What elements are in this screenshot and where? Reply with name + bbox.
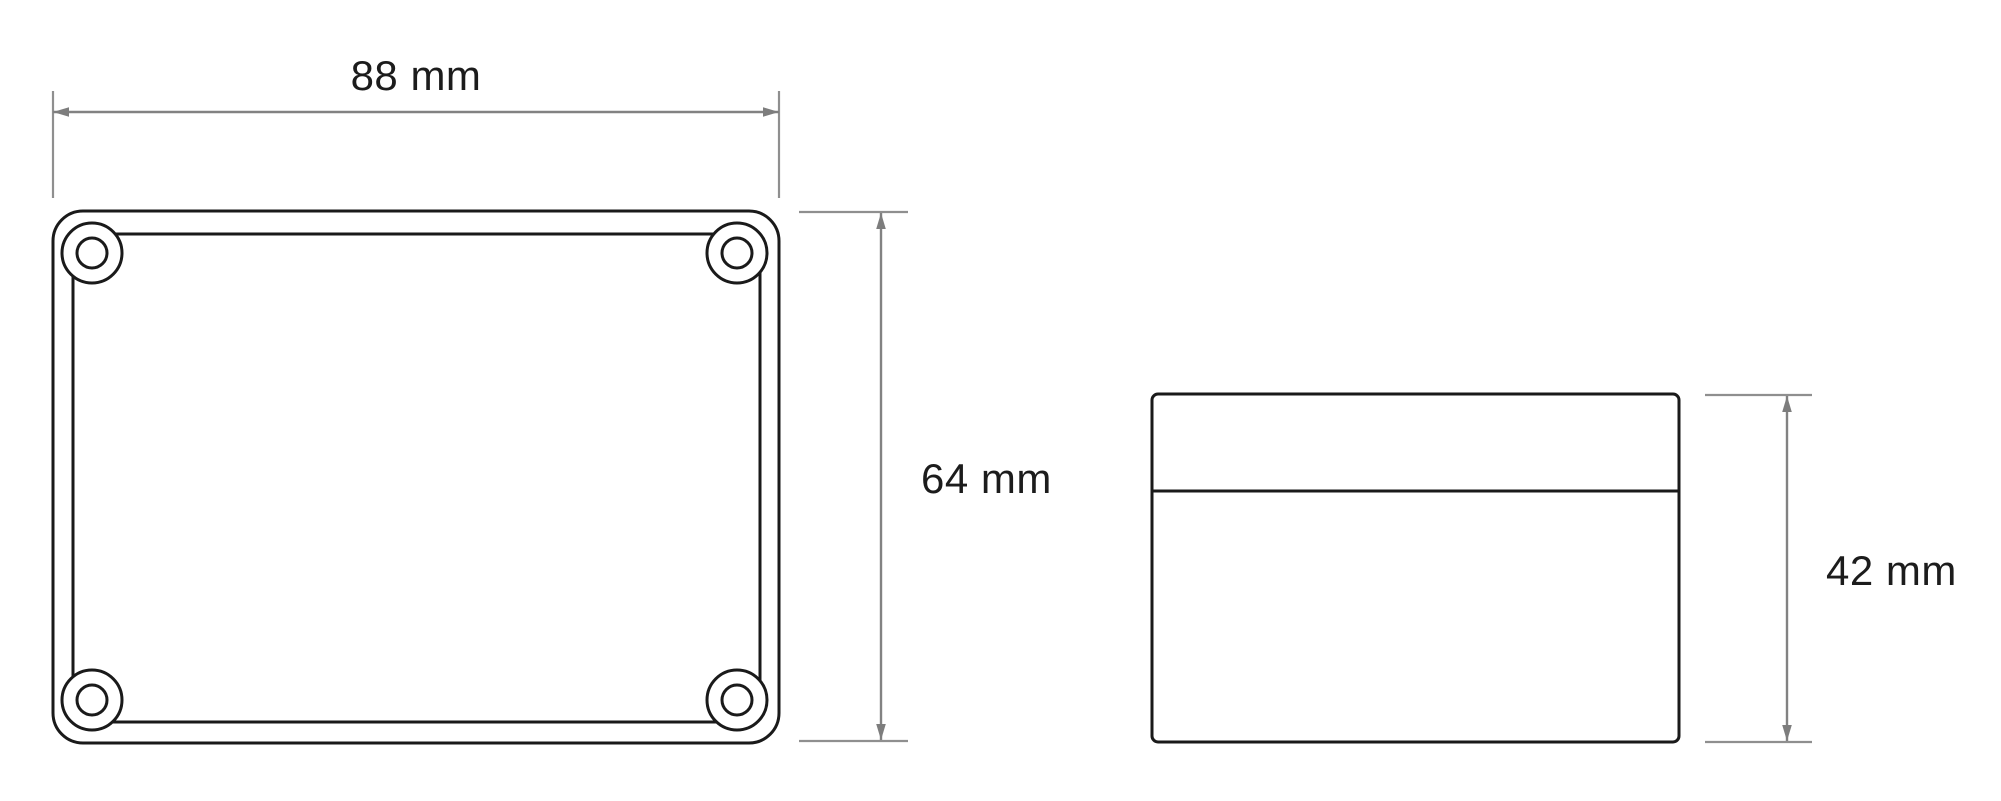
top-view: [53, 211, 779, 743]
dimension-label-width: 88 mm: [351, 52, 482, 99]
screw-boss-bottom-left: [62, 670, 122, 730]
technical-drawing: 88 mm 64 mm 42 mm: [0, 0, 2001, 801]
screw-boss-top-right: [707, 223, 767, 283]
screw-hole: [722, 238, 752, 268]
dimension-label-height: 64 mm: [921, 455, 1052, 502]
screw-boss-bottom-right: [707, 670, 767, 730]
screw-hole: [77, 238, 107, 268]
side-view: [1152, 394, 1679, 742]
screw-hole: [77, 685, 107, 715]
top-view-outer-edge: [53, 211, 779, 743]
screw-hole: [722, 685, 752, 715]
drawing-canvas: 88 mm 64 mm 42 mm: [0, 0, 2001, 801]
dimension-label-depth: 42 mm: [1826, 547, 1957, 594]
screw-boss-top-left: [62, 223, 122, 283]
side-view-outline: [1152, 394, 1679, 742]
